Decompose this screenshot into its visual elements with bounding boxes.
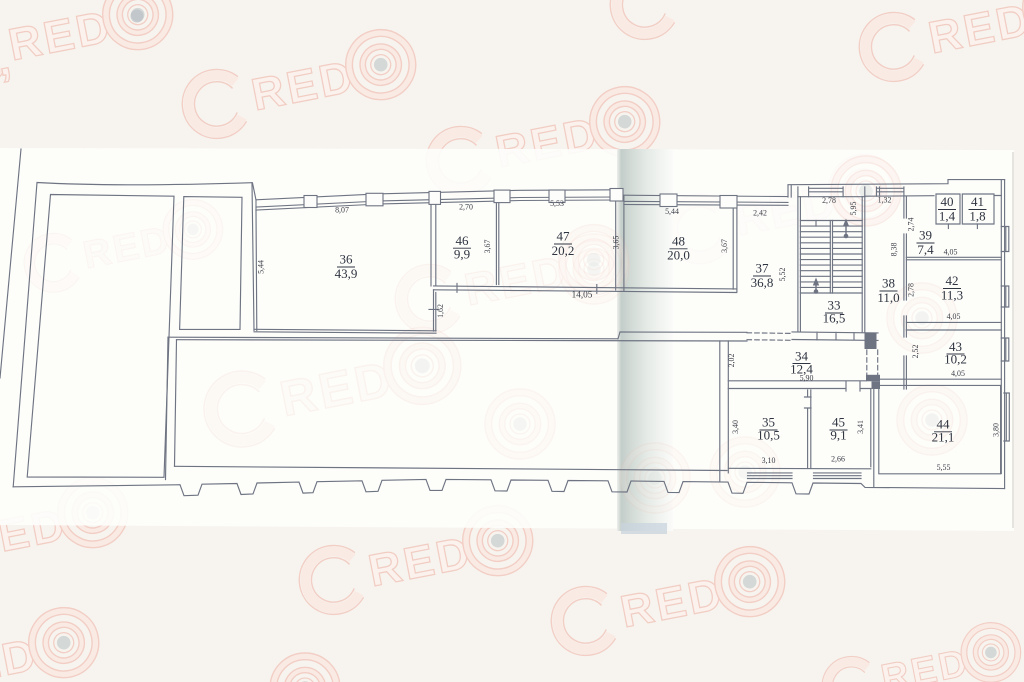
svg-text:2,78: 2,78: [822, 196, 836, 205]
svg-text:4,05: 4,05: [947, 312, 961, 321]
svg-text:8,38: 8,38: [890, 243, 899, 257]
svg-text:36: 36: [340, 252, 354, 267]
svg-text:5,52: 5,52: [778, 268, 787, 282]
svg-text:3,67: 3,67: [720, 239, 729, 253]
svg-text:36,8: 36,8: [751, 275, 774, 290]
svg-text:3,80: 3,80: [992, 423, 1001, 437]
svg-text:5,44: 5,44: [257, 260, 266, 274]
svg-text:39: 39: [919, 228, 932, 243]
svg-text:3,40: 3,40: [731, 420, 740, 434]
svg-text:9,9: 9,9: [454, 247, 470, 262]
svg-text:1,8: 1,8: [969, 209, 985, 224]
svg-text:2,42: 2,42: [753, 208, 767, 217]
svg-text:2,78: 2,78: [907, 283, 916, 297]
svg-text:40: 40: [941, 194, 954, 209]
svg-text:48: 48: [672, 234, 685, 249]
svg-text:14,05: 14,05: [572, 289, 593, 299]
svg-text:3,41: 3,41: [856, 420, 865, 434]
svg-text:5,55: 5,55: [937, 463, 951, 472]
svg-text:1,32: 1,32: [878, 195, 892, 204]
svg-text:20,2: 20,2: [552, 243, 575, 258]
svg-text:2,74: 2,74: [907, 218, 916, 232]
svg-text:1,4: 1,4: [939, 209, 956, 224]
svg-text:7,4: 7,4: [917, 242, 934, 257]
svg-text:11,0: 11,0: [877, 290, 899, 305]
svg-text:37: 37: [756, 261, 770, 276]
svg-text:2,66: 2,66: [831, 454, 845, 463]
svg-text:3,67: 3,67: [483, 240, 492, 254]
svg-text:41: 41: [971, 194, 984, 209]
svg-text:43,9: 43,9: [335, 266, 358, 281]
svg-text:11,3: 11,3: [941, 288, 963, 303]
svg-text:5,53: 5,53: [550, 199, 564, 208]
svg-text:20,0: 20,0: [667, 248, 690, 263]
svg-text:4,05: 4,05: [944, 247, 958, 256]
svg-text:42: 42: [946, 273, 959, 288]
svg-text:38: 38: [882, 276, 895, 291]
svg-text:3,65: 3,65: [612, 236, 621, 250]
svg-text:47: 47: [557, 229, 571, 244]
svg-text:2,52: 2,52: [911, 345, 920, 359]
svg-text:3,10: 3,10: [762, 456, 776, 465]
svg-text:2,02: 2,02: [727, 354, 736, 368]
svg-text:2,70: 2,70: [459, 203, 473, 212]
svg-text:8,07: 8,07: [335, 206, 349, 215]
svg-text:5,44: 5,44: [665, 207, 679, 216]
svg-text:5,95: 5,95: [849, 202, 858, 216]
svg-text:4,05: 4,05: [951, 369, 965, 378]
svg-text:1,62: 1,62: [436, 304, 445, 318]
